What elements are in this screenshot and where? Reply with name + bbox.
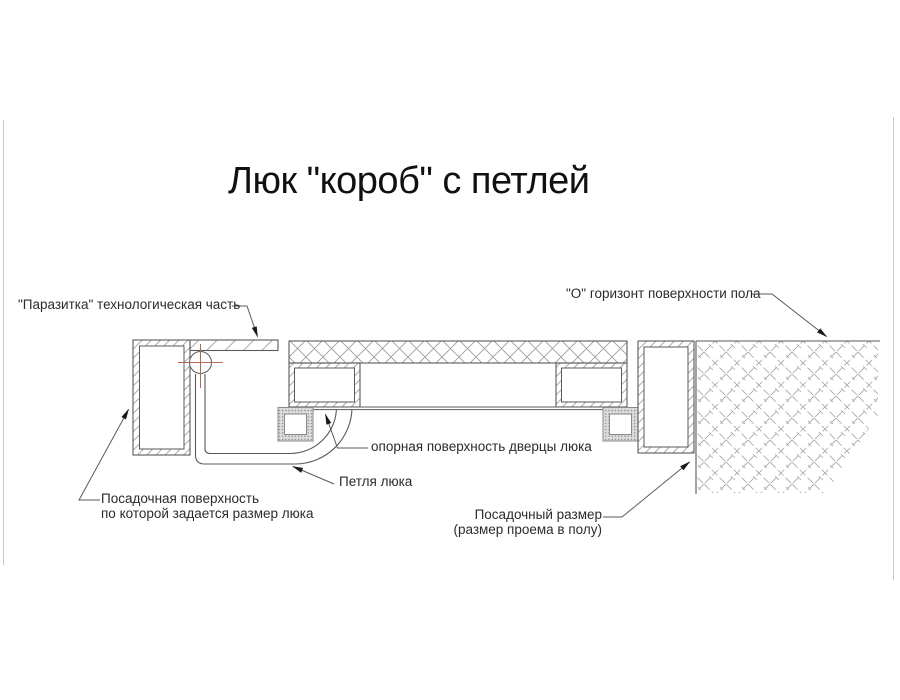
door-top-filling — [289, 341, 627, 363]
drawing-canvas: Люк "короб" с петлей — [0, 0, 900, 700]
frame-right-profile — [638, 341, 694, 453]
label-seating-size: Посадочный размер (размер проема в полу) — [400, 508, 602, 537]
label-seating-size-line1: Посадочный размер — [400, 508, 602, 523]
hinge-bracket-left — [278, 408, 313, 442]
floor-slab — [696, 341, 880, 494]
label-parasitka: "Паразитка" технологическая часть — [18, 298, 240, 313]
label-seating-size-line2: (размер проема в полу) — [400, 523, 602, 538]
parasitka-bar — [190, 340, 278, 351]
label-seating-surface-line1: Посадочная поверхность — [101, 492, 314, 507]
technical-drawing — [0, 0, 900, 700]
label-door-bearing: опорная поверхность дверцы люка — [371, 440, 592, 455]
door-bottom-sheet — [289, 407, 627, 410]
leader-seating-surface — [79, 410, 129, 501]
frame-left-profile — [133, 340, 190, 455]
leader-hinge — [293, 467, 334, 485]
door-leaf — [289, 341, 627, 410]
label-floor-horizon: "О" горизонт поверхности пола — [566, 287, 761, 302]
door-end-profile-right — [556, 363, 627, 407]
leader-seating-size — [603, 462, 690, 517]
label-hinge: Петля люка — [339, 475, 412, 490]
hinge-bracket-right — [603, 408, 638, 442]
leader-floor-horizon — [752, 294, 827, 337]
label-seating-surface-line2: по которой задается размер люка — [101, 507, 314, 522]
door-end-profile-left — [289, 363, 360, 407]
label-seating-surface: Посадочная поверхность по которой задает… — [101, 492, 314, 521]
